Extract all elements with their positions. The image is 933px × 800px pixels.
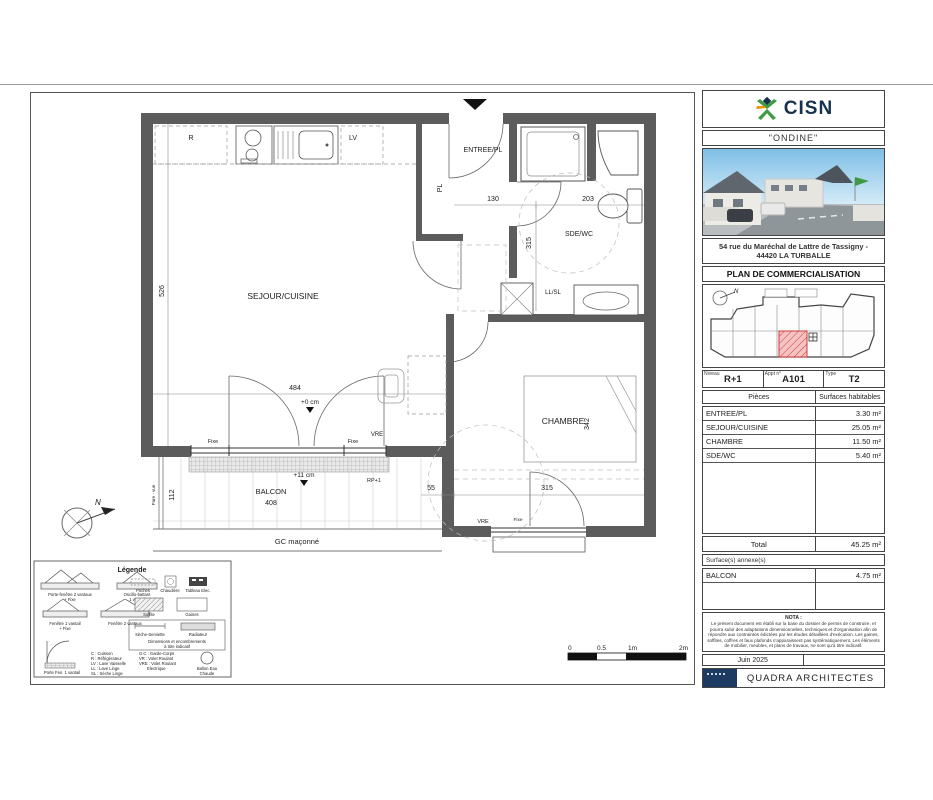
dim-sde-width: 203 — [582, 196, 594, 203]
brand-box: CISN — [702, 90, 885, 128]
annex-table: BALCON4.75 m² — [702, 568, 885, 610]
pare-vue-label: Pare - vue — [151, 484, 156, 505]
address-box: 54 rue du Maréchal de Lattre de Tassigny… — [702, 238, 885, 264]
key-plan-north: N — [713, 289, 739, 305]
svg-text:0.5: 0.5 — [597, 645, 606, 652]
site-photo — [702, 148, 885, 236]
address-line1: 54 rue du Maréchal de Lattre de Tassigny… — [719, 242, 868, 251]
brand-name: CISN — [784, 98, 833, 120]
floor-plan-drawing: N SEJOUR/CUISINE ENTREE/PL SDE/WC CHAMBR… — [31, 93, 694, 684]
nota-box: NOTA : Le présent document est établi su… — [702, 612, 885, 652]
appt-value: A101 — [782, 374, 805, 387]
svg-text:SL : Sèche Linge: SL : Sèche Linge — [91, 671, 123, 676]
dim-sejour-width: 484 — [289, 385, 301, 392]
col-pieces: Pièces — [703, 391, 816, 403]
surface-table: ENTREE/PL3.30 m² SEJOUR/CUISINE25.05 m² … — [702, 406, 885, 534]
architect-row: QUADRA ARCHITECTES — [702, 668, 885, 688]
svg-text:Tableau Elec.: Tableau Elec. — [185, 588, 210, 593]
address-line2: 44420 LA TURBALLE — [756, 251, 830, 260]
gc-maconne-label: GC maçonné — [275, 537, 319, 546]
project-name: "ONDINE" — [769, 133, 818, 143]
dim-balcon-depth: 112 — [169, 489, 176, 500]
unit-id-row: Niveau R+1 Appt n° A101 Type T2 — [702, 370, 885, 388]
room-label-placard: PL — [437, 184, 444, 193]
dim-sde-height: 315 — [526, 237, 533, 249]
svg-text:Poches: Poches — [136, 588, 150, 593]
type-value: T2 — [849, 374, 860, 387]
fixture-label-fridge: R — [188, 135, 193, 142]
plan-texts: SEJOUR/CUISINE ENTREE/PL SDE/WC CHAMBRE … — [151, 135, 594, 546]
fixe-right-label: Fixe — [348, 439, 358, 445]
key-plan-box: N — [702, 284, 885, 368]
svg-text:+ Fixe: + Fixe — [64, 597, 76, 602]
shower — [521, 127, 585, 181]
svg-text:Chaude: Chaude — [200, 671, 215, 676]
washbasin-top — [598, 131, 638, 175]
total-row: Total 45.25 m² — [702, 536, 885, 552]
col-surfaces: Surfaces habitables — [816, 391, 884, 403]
dim-entree-width: 130 — [487, 196, 499, 203]
fixe-chambre-label: Fixe — [513, 517, 522, 523]
annex-label-row: Surface(s) annexe(s) — [702, 554, 885, 566]
vre-sejour-label: VRE — [371, 432, 383, 438]
kitchen-fixtures — [153, 126, 416, 164]
vanity-unit — [574, 285, 638, 315]
svg-text:0: 0 — [568, 645, 572, 652]
svg-text:Gaines: Gaines — [185, 612, 198, 617]
niveau-cell: Niveau R+1 — [703, 371, 764, 387]
architect-name: QUADRA ARCHITECTES — [737, 669, 884, 687]
table-row: CHAMBRE11.50 m² — [703, 435, 884, 449]
svg-text:Sèche-Serviette: Sèche-Serviette — [135, 632, 165, 637]
appt-label: Appt n° — [765, 371, 781, 377]
svg-text:Chaudière: Chaudière — [160, 588, 180, 593]
cisn-logo-icon — [754, 97, 780, 121]
north-compass: N — [62, 498, 115, 538]
floor-plan-frame: N SEJOUR/CUISINE ENTREE/PL SDE/WC CHAMBR… — [30, 92, 695, 685]
type-cell: Type T2 — [824, 371, 884, 387]
total-label: Total — [703, 537, 816, 551]
chair — [378, 369, 404, 403]
highlighted-unit — [779, 331, 807, 357]
desk — [408, 356, 446, 414]
level-sejour: +0 cm — [301, 399, 319, 406]
doc-title-box: PLAN DE COMMERCIALISATION — [702, 266, 885, 282]
niveau-value: R+1 — [724, 374, 742, 387]
dim-chambre-height: 342 — [584, 418, 591, 430]
svg-text:à titre indicatif: à titre indicatif — [164, 644, 191, 649]
svg-text:2m: 2m — [679, 645, 688, 652]
bathroom-fixtures — [501, 127, 642, 315]
svg-text:Fenêtre 2 vantaux: Fenêtre 2 vantaux — [108, 621, 143, 626]
scale-bar: 0 0.5 1m 2m — [568, 645, 688, 660]
level-balcon: +11 cm — [293, 472, 314, 479]
surface-table-header: Pièces Surfaces habitables — [702, 390, 885, 404]
svg-text:+ Fixe: + Fixe — [59, 626, 71, 631]
title-block-panel: CISN "ONDINE" 54 rue du Ma — [702, 90, 885, 688]
niveau-label: Niveau — [704, 371, 720, 377]
svg-text:Electrique: Electrique — [147, 666, 166, 671]
svg-text:Porte Fen. 1 vantail: Porte Fen. 1 vantail — [44, 670, 80, 675]
doc-title: PLAN DE COMMERCIALISATION — [727, 269, 861, 279]
table-row: SEJOUR/CUISINE25.05 m² — [703, 421, 884, 435]
window-sill-hatch — [189, 457, 389, 472]
windows — [189, 445, 586, 552]
date-row: Juin 2025 — [702, 654, 885, 666]
commercial-floor-plan-sheet: { "plan": { "rooms": {"sejour":"SEJOUR/C… — [0, 0, 933, 800]
quadra-logo — [703, 669, 737, 687]
room-label-sejour: SEJOUR/CUISINE — [247, 291, 319, 301]
dark-car — [727, 209, 753, 222]
room-label-chambre: CHAMBRE — [542, 416, 585, 426]
bedroom-window-box — [493, 537, 585, 552]
north-label: N — [95, 498, 101, 507]
bedroom-window — [491, 528, 586, 532]
table-row: SDE/WC5.40 m² — [703, 449, 884, 463]
total-value: 45.25 m² — [816, 540, 884, 549]
dim-step: 55 — [427, 485, 435, 492]
page-top-rule — [0, 84, 933, 85]
nota-text: Le présent document est établi sur la ba… — [707, 621, 880, 649]
project-name-box: "ONDINE" — [702, 130, 885, 146]
date-value: Juin 2025 — [703, 655, 804, 665]
white-van — [761, 203, 785, 215]
svg-text:1m: 1m — [628, 645, 637, 652]
toilet-bowl — [598, 194, 628, 218]
fixe-left-label: Fixe — [208, 439, 218, 445]
room-label-sde: SDE/WC — [565, 231, 593, 238]
dishwasher-zone — [341, 126, 383, 164]
type-label: Type — [825, 371, 836, 377]
svg-text:Radiateur: Radiateur — [189, 632, 208, 637]
entrance-arrow-icon — [463, 99, 487, 110]
fixture-label-dishwasher: LV — [349, 135, 357, 142]
annex-divider — [815, 569, 816, 609]
dim-chambre-width: 315 — [541, 485, 553, 492]
legend: Légende Porte-fenêtre 2 vantaux + Fixe O… — [34, 561, 231, 677]
fixture-label-washer: LL/SL — [545, 290, 561, 296]
appt-cell: Appt n° A101 — [764, 371, 825, 387]
table-row: ENTREE/PL3.30 m² — [703, 407, 884, 421]
vre-chambre-label: VRE — [477, 519, 489, 525]
rp-label: RP+1 — [367, 478, 381, 484]
dim-sejour-height: 526 — [159, 285, 166, 297]
room-label-balcon: BALCON — [256, 487, 287, 496]
balcony-window — [191, 445, 386, 456]
svg-text:Soffite: Soffite — [143, 612, 155, 617]
annex-row: BALCON4.75 m² — [703, 569, 884, 583]
legend-title: Légende — [118, 567, 147, 574]
toilet-tank — [627, 189, 642, 223]
svg-text:N: N — [734, 289, 739, 295]
table-divider — [815, 407, 816, 533]
fridge-zone — [155, 126, 227, 164]
room-label-entree: ENTREE/PL — [464, 147, 503, 154]
hob-unit — [236, 126, 272, 164]
dim-balcon-width: 408 — [265, 500, 277, 507]
white-wall — [853, 205, 884, 221]
level-marker-sejour — [306, 407, 314, 413]
